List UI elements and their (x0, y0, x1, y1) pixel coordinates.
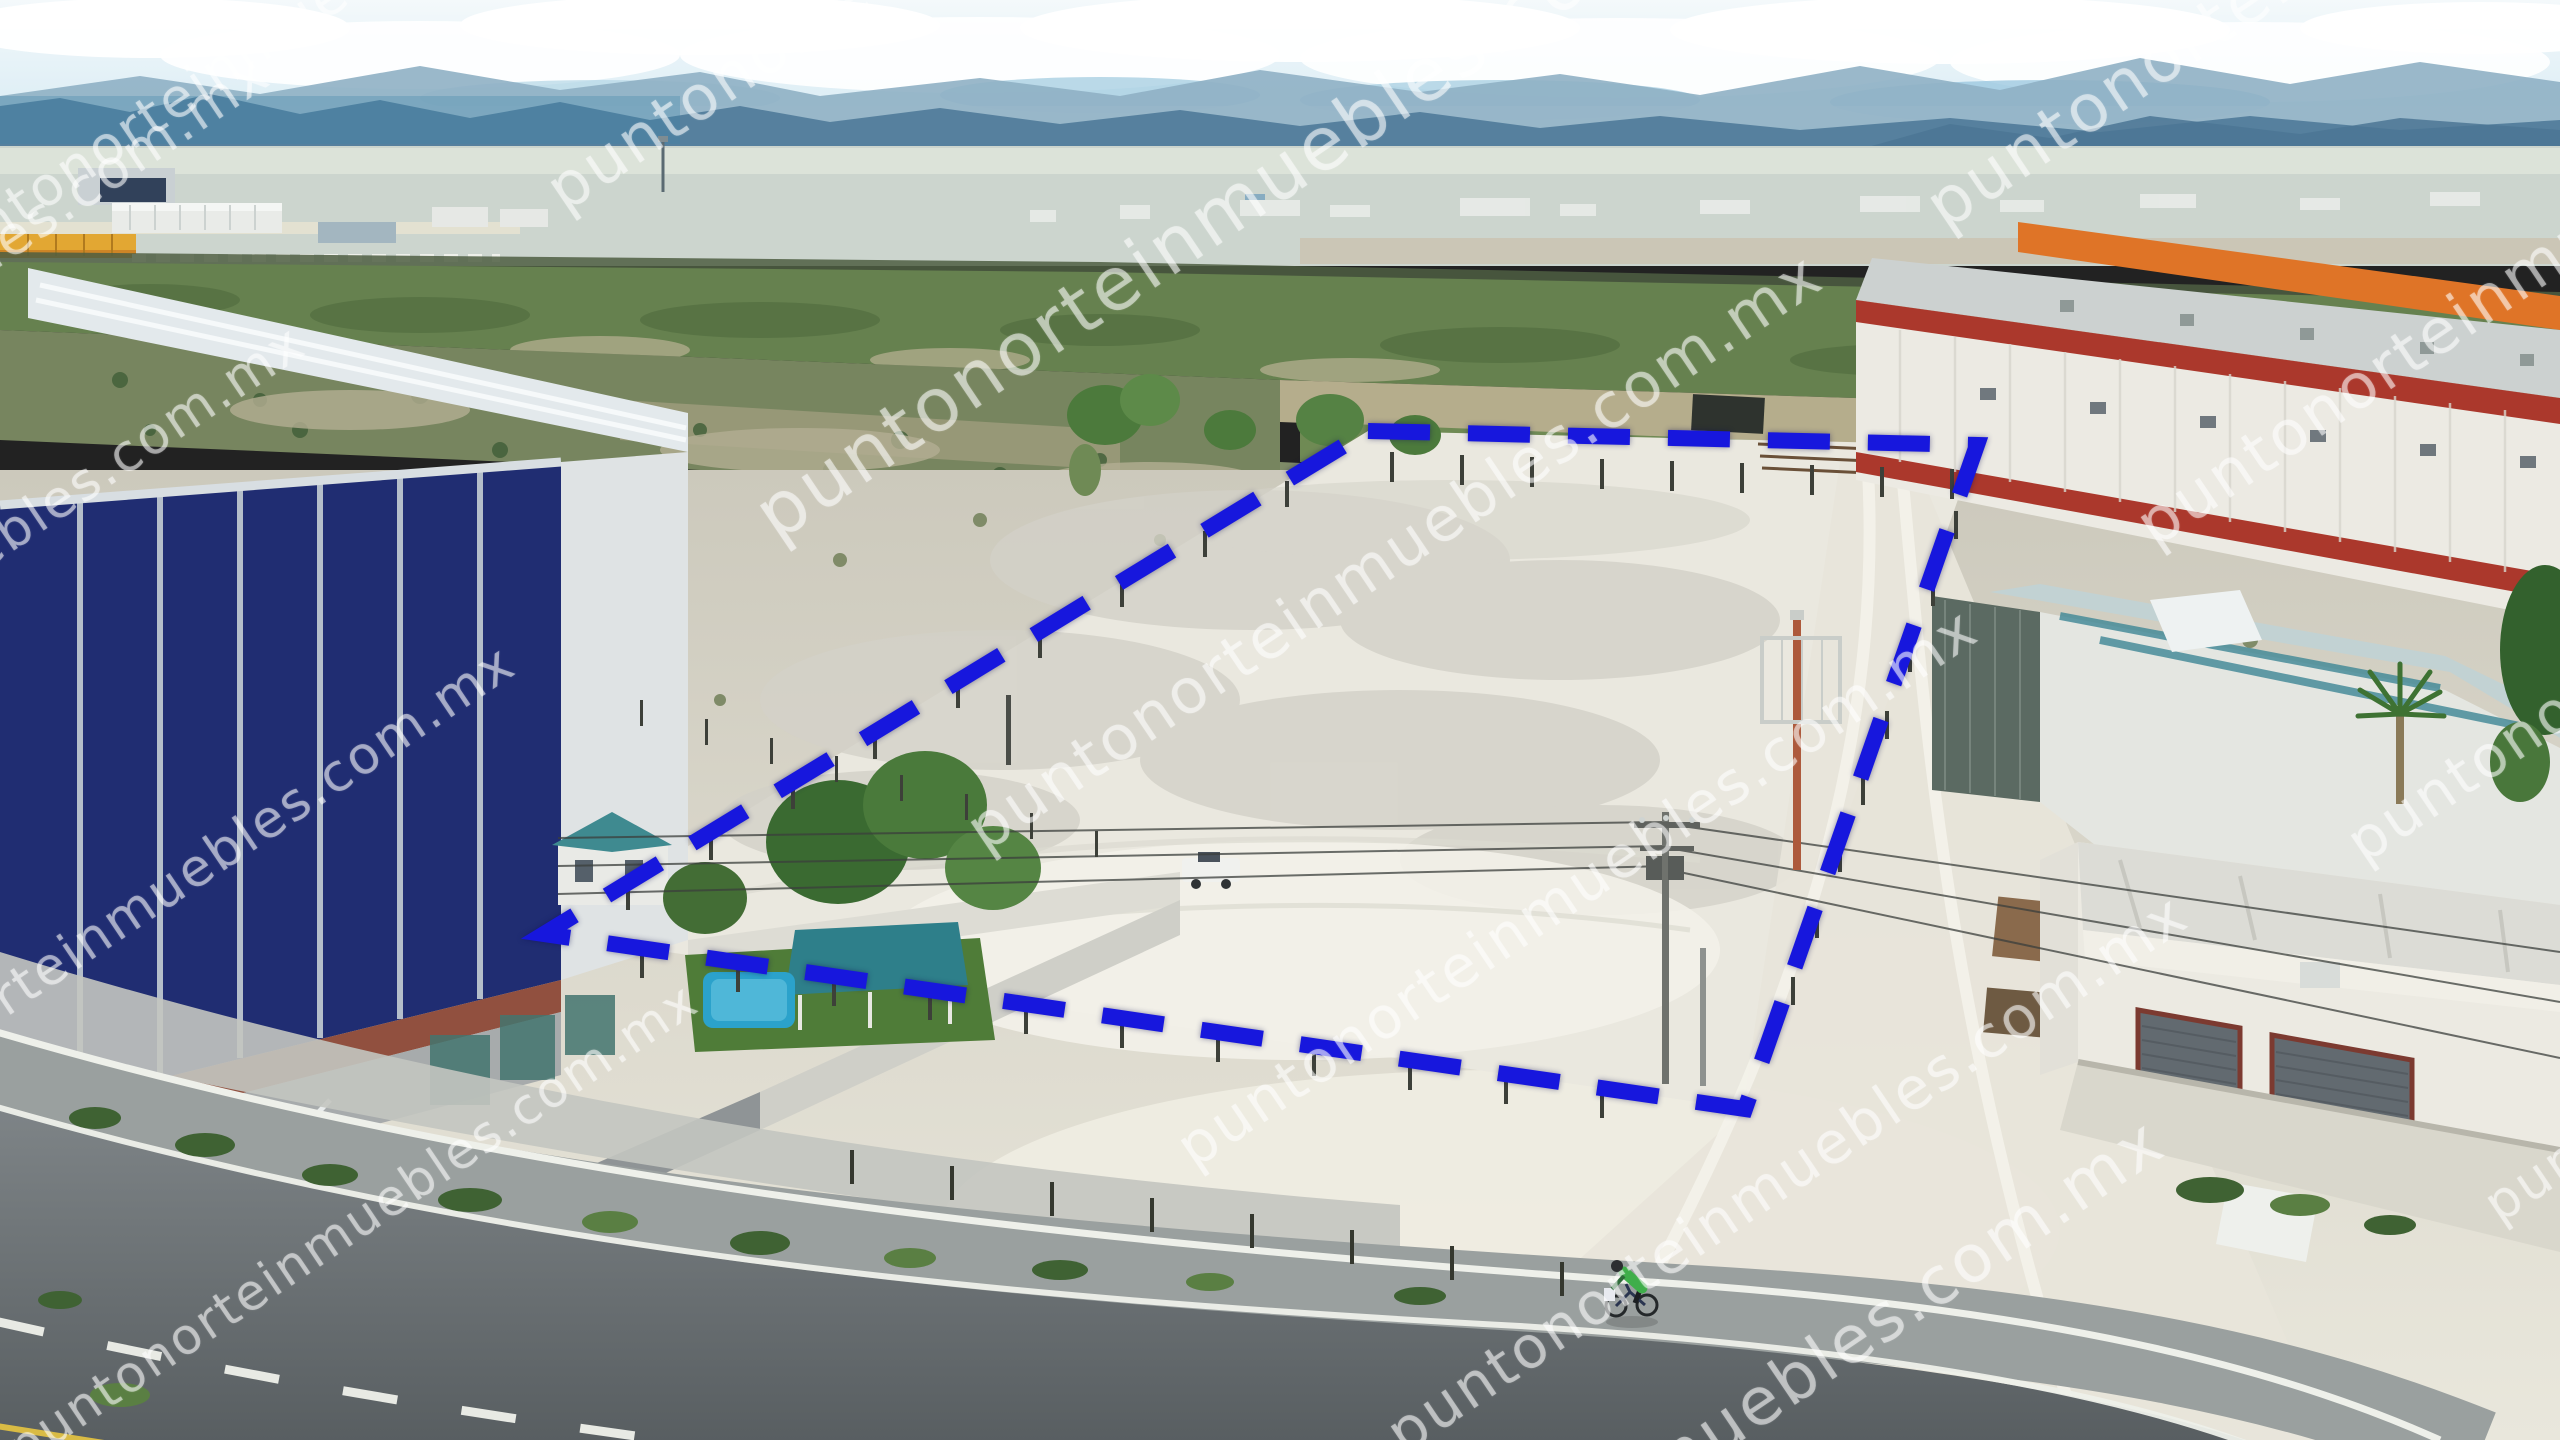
lot-pole (1006, 695, 1011, 765)
rider-head (1611, 1260, 1623, 1272)
secondary-pole (1700, 948, 1706, 1086)
aerial-photo: puntonorteinmuebles.com.mx puntonorteinm… (0, 0, 2560, 1440)
mesh-gable (1932, 596, 2040, 802)
landscape (0, 0, 2560, 1440)
shade-structure (1691, 394, 1765, 434)
ac-unit (2300, 962, 2340, 988)
